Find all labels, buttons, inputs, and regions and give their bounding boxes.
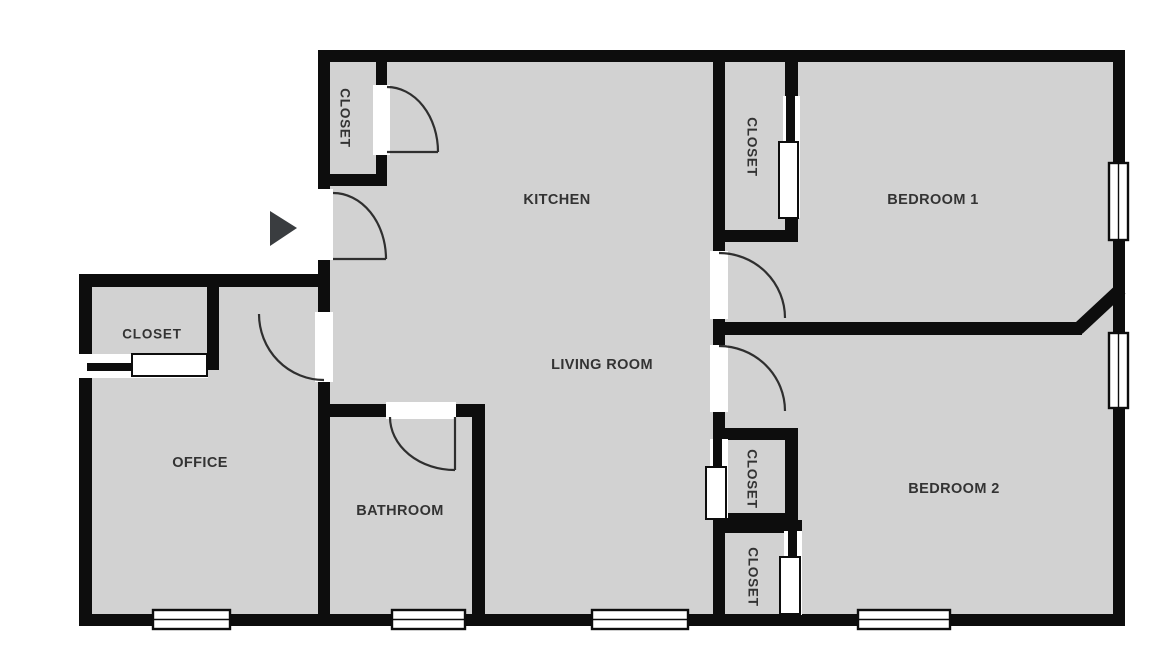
- bedroom2-bottom-window: [858, 610, 950, 629]
- bathroom-door-opening: [386, 402, 456, 419]
- slider-panel-light: [779, 142, 798, 218]
- entry-door-opening: [315, 189, 333, 260]
- wall: [713, 230, 798, 242]
- room-label-office: OFFICE: [172, 455, 228, 471]
- room-label-living-room: LIVING ROOM: [551, 357, 653, 373]
- bedroom2-door-opening: [710, 345, 728, 412]
- room-label-bedroom-1: BEDROOM 1: [887, 192, 978, 208]
- floor-plan: KITCHEN LIVING ROOM BEDROOM 1 BEDROOM 2 …: [0, 0, 1173, 659]
- room-label-bedroom2-closet: CLOSET: [746, 547, 761, 607]
- slider-panel-light: [706, 467, 726, 519]
- office-door-opening: [315, 312, 333, 382]
- wall: [79, 274, 92, 626]
- room-label-hall-closet: CLOSET: [745, 449, 760, 509]
- room-label-bathroom: BATHROOM: [356, 503, 444, 519]
- wall: [318, 50, 1125, 62]
- floor-area: [79, 50, 1125, 626]
- wall: [207, 287, 219, 370]
- wall: [725, 322, 1082, 335]
- slider-panel-light: [132, 354, 207, 376]
- slider-panel-light: [780, 557, 800, 614]
- bedroom1-door-opening: [710, 251, 728, 319]
- entry-arrow-icon: [270, 211, 297, 246]
- wall: [785, 428, 798, 525]
- room-label-bedroom-2: BEDROOM 2: [908, 481, 999, 497]
- office-window: [153, 610, 230, 629]
- room-label-kitchen: KITCHEN: [523, 192, 590, 208]
- bedroom1-side-window: [1109, 163, 1128, 240]
- room-label-kitchen-closet: CLOSET: [338, 88, 353, 148]
- kitchen-closet-door-opening: [373, 85, 390, 155]
- wall: [79, 274, 330, 287]
- bedroom2-side-window: [1109, 333, 1128, 408]
- room-label-bedroom1-closet: CLOSET: [745, 117, 760, 177]
- bathroom-window: [392, 610, 465, 629]
- living-room-window: [592, 610, 688, 629]
- wall: [318, 174, 387, 186]
- wall: [472, 404, 485, 626]
- room-label-office-closet: CLOSET: [122, 327, 182, 342]
